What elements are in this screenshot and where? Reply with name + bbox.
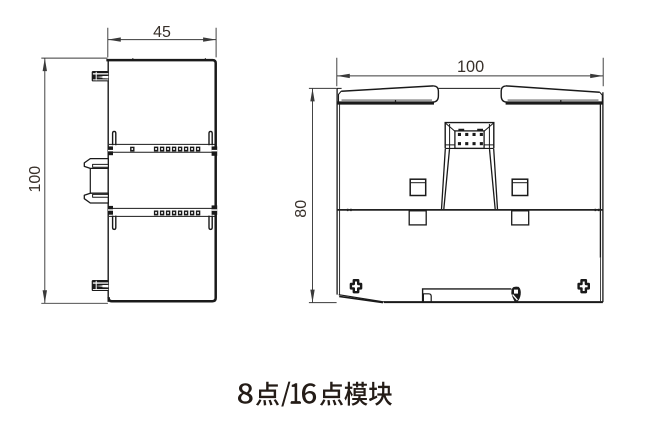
svg-text:80: 80 <box>293 200 310 218</box>
svg-text:45: 45 <box>153 24 171 41</box>
svg-text:100: 100 <box>27 166 44 193</box>
svg-text:100: 100 <box>457 58 484 76</box>
